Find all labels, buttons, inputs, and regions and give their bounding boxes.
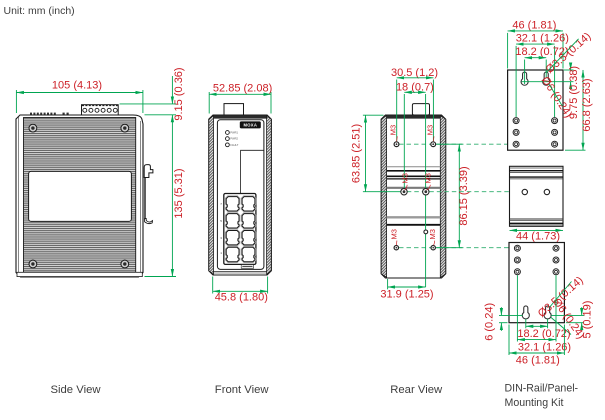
svg-text:46 (1.81): 46 (1.81) xyxy=(512,20,556,32)
svg-text:52.85 (2.08): 52.85 (2.08) xyxy=(213,83,272,95)
svg-text:Unit: mm (inch): Unit: mm (inch) xyxy=(4,5,75,17)
svg-text:30.5 (1.2): 30.5 (1.2) xyxy=(391,67,438,79)
svg-text:44 (1.73): 44 (1.73) xyxy=(516,230,560,242)
svg-text:6 (0.24): 6 (0.24) xyxy=(484,303,496,341)
svg-text:Side View: Side View xyxy=(50,384,101,396)
svg-text:32.1 (1.26): 32.1 (1.26) xyxy=(516,33,569,45)
svg-text:DIN-Rail/Panel-: DIN-Rail/Panel- xyxy=(505,383,579,395)
svg-text:46 (1.81): 46 (1.81) xyxy=(516,354,560,366)
svg-text:Rear View: Rear View xyxy=(390,384,443,396)
svg-text:M3: M3 xyxy=(424,173,433,183)
svg-text:9.75 (0.38): 9.75 (0.38) xyxy=(568,66,580,119)
svg-text:M3: M3 xyxy=(389,229,398,239)
svg-text:Mounting Kit: Mounting Kit xyxy=(505,397,564,409)
svg-text:32.1 (1.26): 32.1 (1.26) xyxy=(518,341,571,353)
svg-text:18 (0.7): 18 (0.7) xyxy=(396,81,434,93)
svg-text:M3: M3 xyxy=(428,229,437,239)
svg-text:45.8 (1.80): 45.8 (1.80) xyxy=(215,291,268,303)
svg-text:MOXA: MOXA xyxy=(243,122,257,127)
svg-text:M3: M3 xyxy=(425,125,434,135)
svg-text:105 (4.13): 105 (4.13) xyxy=(52,80,102,92)
svg-text:86.15 (3.39): 86.15 (3.39) xyxy=(458,166,470,225)
svg-text:Front View: Front View xyxy=(215,384,270,396)
svg-text:66.8 (2.63): 66.8 (2.63) xyxy=(581,78,593,131)
svg-text:M3: M3 xyxy=(400,173,409,183)
svg-text:9.15 (0.36): 9.15 (0.36) xyxy=(173,67,185,120)
svg-text:135 (5.31): 135 (5.31) xyxy=(173,168,185,218)
svg-text:18.2 (0.72): 18.2 (0.72) xyxy=(517,328,570,340)
svg-text:63.85 (2.51): 63.85 (2.51) xyxy=(351,124,363,183)
svg-text:31.9 (1.25): 31.9 (1.25) xyxy=(380,288,433,300)
svg-text:M3: M3 xyxy=(388,125,397,135)
